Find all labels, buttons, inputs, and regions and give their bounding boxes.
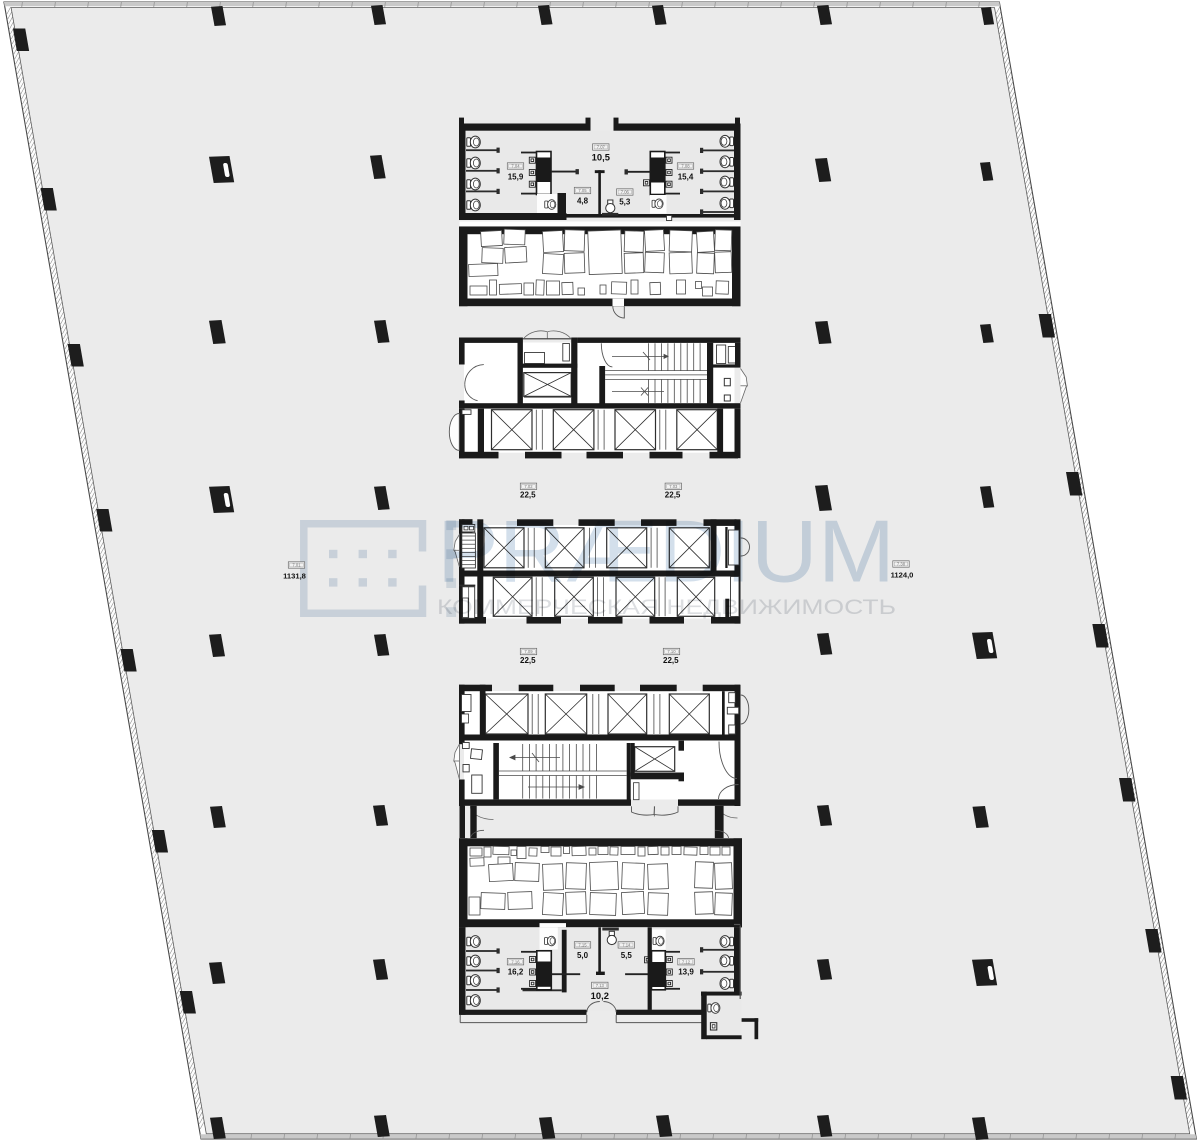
svg-text:1131,8: 1131,8: [283, 572, 306, 581]
svg-text:7.06: 7.06: [621, 190, 630, 195]
svg-text:7.15: 7.15: [578, 943, 587, 948]
svg-text:15,9: 15,9: [508, 173, 524, 182]
svg-text:4,8: 4,8: [577, 197, 589, 206]
svg-text:16,2: 16,2: [508, 968, 524, 977]
svg-text:7.01: 7.01: [292, 563, 301, 568]
svg-text:7.10: 7.10: [667, 649, 676, 654]
svg-text:5,3: 5,3: [619, 198, 631, 207]
svg-text:КОММЕРЧЕСКАЯ НЕДВИЖИМОСТЬ: КОММЕРЧЕСКАЯ НЕДВИЖИМОСТЬ: [437, 595, 896, 619]
svg-text:5,5: 5,5: [621, 951, 633, 960]
svg-text:7.16: 7.16: [511, 959, 520, 964]
svg-text:7.02: 7.02: [524, 484, 533, 489]
svg-text:22,5: 22,5: [663, 656, 679, 665]
svg-text:7.08: 7.08: [681, 164, 690, 169]
svg-text:22,5: 22,5: [520, 656, 536, 665]
svg-text:7.14: 7.14: [622, 943, 631, 948]
svg-text:7.07: 7.07: [597, 145, 606, 150]
svg-text:10,5: 10,5: [592, 152, 610, 163]
svg-text:7.05: 7.05: [578, 188, 587, 193]
svg-text:22,5: 22,5: [520, 491, 536, 500]
svg-text:7.03: 7.03: [669, 484, 678, 489]
svg-text:1124,0: 1124,0: [891, 571, 914, 580]
svg-text:13,9: 13,9: [678, 968, 694, 977]
svg-text:PRÆDIUM: PRÆDIUM: [437, 502, 895, 601]
svg-text:7.04: 7.04: [511, 164, 520, 169]
svg-text:7.38: 7.38: [897, 562, 906, 567]
svg-text:7.12: 7.12: [682, 959, 691, 964]
svg-text:7.09: 7.09: [524, 649, 533, 654]
svg-text:5,0: 5,0: [577, 951, 589, 960]
svg-text:15,4: 15,4: [678, 173, 694, 182]
svg-text:10,2: 10,2: [591, 990, 609, 1001]
svg-text:7.13: 7.13: [596, 983, 605, 988]
svg-text:22,5: 22,5: [665, 491, 681, 500]
